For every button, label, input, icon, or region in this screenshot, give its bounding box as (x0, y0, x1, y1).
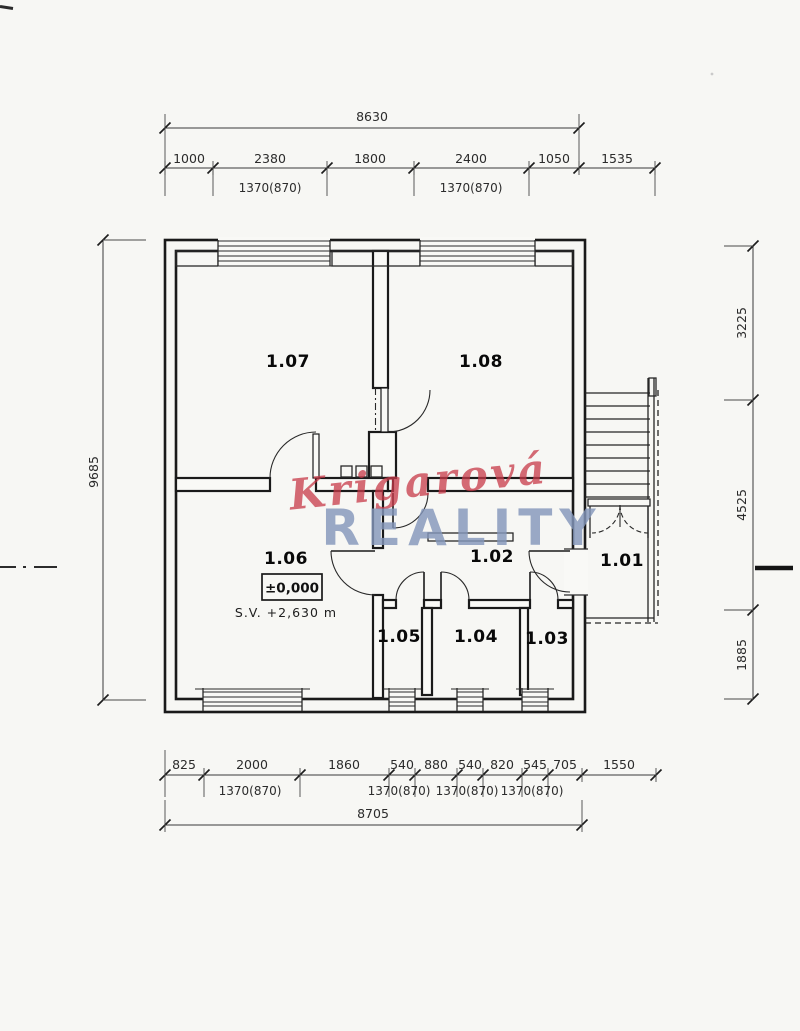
scanned-floor-plan-page: 8630 1000 2380 1800 2400 1050 1535 1370(… (0, 0, 800, 1031)
dim-bottom-segment: 825 (172, 757, 196, 772)
dim-bottom-segment: 705 (553, 757, 577, 772)
door-102-104 (441, 572, 469, 600)
dim-top-segment: 2400 (455, 151, 487, 166)
dim-bottom-window: 1370(870) (436, 784, 499, 798)
exterior-stairs (585, 393, 650, 497)
door-107-108 (376, 388, 431, 432)
dimension-left: 9685 (86, 235, 146, 706)
dim-bottom-total: 8705 (357, 806, 389, 821)
dim-top-total: 8630 (356, 109, 388, 124)
ceiling-height-value: S.V. +2,630 m (235, 605, 337, 620)
dim-right-segment: 4525 (734, 489, 749, 521)
dimension-top: 8630 1000 2380 1800 2400 1050 1535 1370(… (160, 109, 661, 196)
dim-top-segment: 1050 (538, 151, 570, 166)
dim-bottom-segment: 540 (390, 757, 414, 772)
dim-bottom-window: 1370(870) (501, 784, 564, 798)
room-label: 1.03 (525, 629, 569, 649)
dim-bottom-window: 1370(870) (219, 784, 282, 798)
dim-bottom-segment: 1550 (603, 757, 635, 772)
room-label: 1.04 (454, 627, 498, 647)
window-top-left (208, 237, 340, 268)
dim-top-window: 1370(870) (440, 181, 503, 195)
dim-bottom-segment: 2000 (236, 757, 268, 772)
door-101-102 (529, 551, 570, 592)
door-102-105 (396, 572, 424, 600)
door-102-106 (331, 551, 375, 595)
room-label: 1.01 (600, 551, 644, 571)
dim-left-total: 9685 (86, 456, 101, 488)
dim-top-segment: 2380 (254, 151, 286, 166)
room-label: 1.06 (264, 549, 308, 569)
room-label: 1.08 (459, 352, 503, 372)
window-bottom-103 (516, 688, 554, 711)
window-top-right (410, 237, 545, 268)
window-bottom-105 (383, 688, 421, 711)
dim-top-segment: 1535 (601, 151, 633, 166)
dim-top-window: 1370(870) (239, 181, 302, 195)
dimension-bottom: 825 2000 1860 540 880 540 820 545 705 15… (160, 750, 662, 832)
door-102-103 (530, 572, 558, 600)
dim-right-segment: 1885 (734, 639, 749, 671)
floor-plan-canvas: 8630 1000 2380 1800 2400 1050 1535 1370(… (0, 0, 800, 1031)
dim-bottom-segment: 1860 (328, 757, 360, 772)
dim-bottom-window: 1370(870) (368, 784, 431, 798)
dim-right-segment: 3225 (734, 307, 749, 339)
dim-bottom-segment: 820 (490, 757, 514, 772)
window-bottom-104 (451, 688, 489, 711)
dimension-right: 3225 4525 1885 (724, 241, 793, 705)
watermark-block-text: REALITY (321, 499, 602, 557)
room-label: 1.07 (266, 352, 310, 372)
room-label: 1.05 (377, 627, 421, 647)
window-bottom-left (195, 688, 310, 711)
watermark: Krigarová REALITY (286, 444, 603, 557)
dim-top-segment: 1800 (354, 151, 386, 166)
dim-bottom-segment: 545 (523, 757, 547, 772)
level-value: ±0,000 (265, 581, 319, 597)
dim-bottom-segment: 540 (458, 757, 482, 772)
dim-bottom-segment: 880 (424, 757, 448, 772)
level-annotations: ±0,000 S.V. +2,630 m (235, 574, 337, 620)
dim-top-segment: 1000 (173, 151, 205, 166)
